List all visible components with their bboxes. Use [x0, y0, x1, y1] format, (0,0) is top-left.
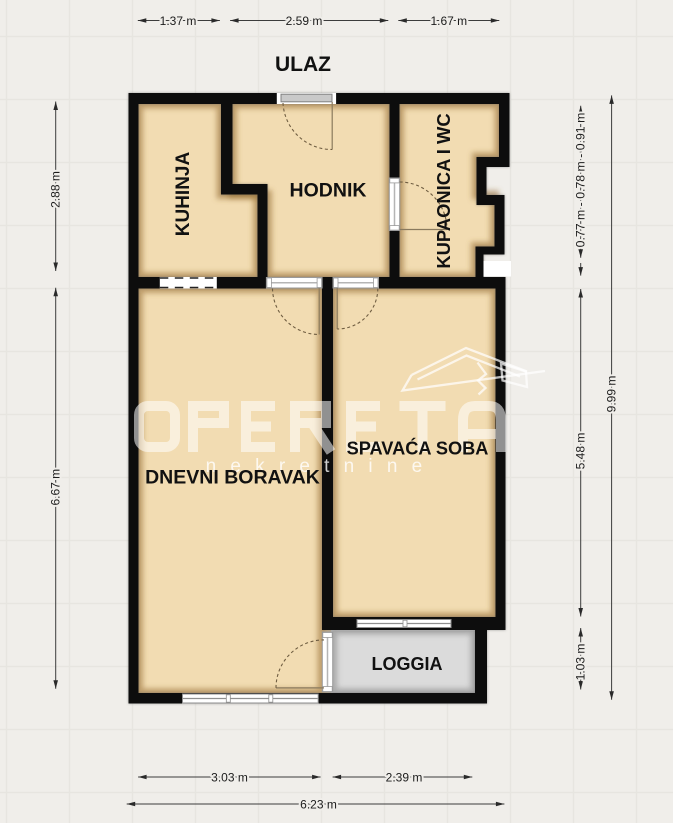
svg-text:2.59 m: 2.59 m	[286, 14, 323, 28]
svg-text:1.37 m: 1.37 m	[160, 14, 197, 28]
svg-text:DNEVNI BORAVAK: DNEVNI BORAVAK	[145, 467, 320, 489]
svg-text:5.48 m: 5.48 m	[574, 433, 588, 470]
svg-text:3.03 m: 3.03 m	[211, 771, 248, 785]
svg-text:9.99 m: 9.99 m	[605, 376, 619, 413]
svg-text:LOGGIA: LOGGIA	[372, 654, 443, 674]
svg-text:ULAZ: ULAZ	[275, 53, 331, 76]
svg-text:6.23 m: 6.23 m	[300, 798, 337, 812]
svg-text:2.88 m: 2.88 m	[49, 171, 63, 208]
svg-text:0.77 m - 0.78 m - 0.91 m: 0.77 m - 0.78 m - 0.91 m	[574, 113, 588, 248]
svg-text:1.67 m: 1.67 m	[430, 14, 467, 28]
svg-text:SPAVAĆA SOBA: SPAVAĆA SOBA	[347, 438, 489, 459]
svg-text:KUPAONICA I WC: KUPAONICA I WC	[433, 113, 454, 268]
svg-text:KUHINJA: KUHINJA	[173, 151, 194, 236]
svg-text:6.67 m: 6.67 m	[49, 469, 63, 506]
svg-text:2.39 m: 2.39 m	[386, 771, 423, 785]
svg-text:HODNIK: HODNIK	[290, 180, 367, 202]
svg-text:1.03 m: 1.03 m	[574, 644, 588, 681]
